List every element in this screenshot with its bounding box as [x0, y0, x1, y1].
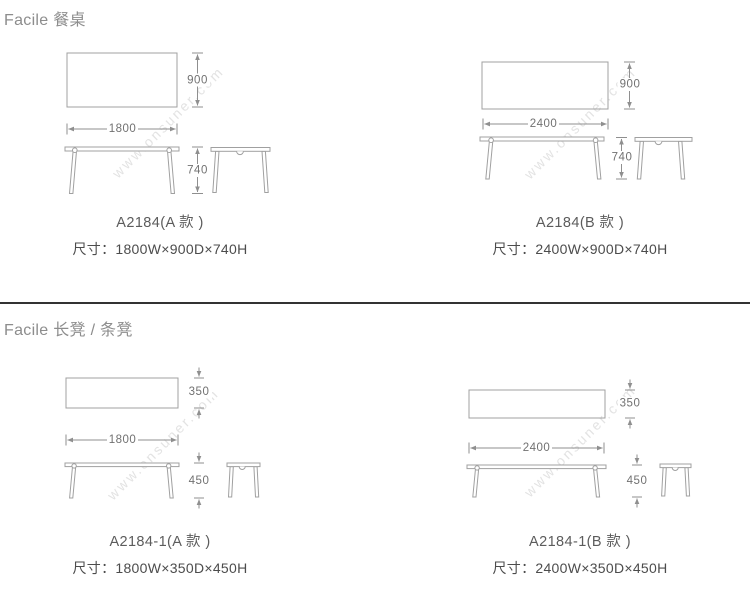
leg-joint-right — [167, 148, 172, 153]
side-right-leg — [254, 467, 259, 497]
leg-joint-right — [167, 464, 171, 468]
table-b-side-view — [635, 138, 692, 180]
bench-a-width-dimension: 1800 — [66, 434, 178, 447]
stretcher-notch — [237, 151, 244, 154]
drawing-bench-a: 350 1800 — [65, 368, 260, 509]
table-b-width-value: 2400 — [530, 118, 558, 130]
tabletop — [480, 137, 604, 141]
front-left-leg — [473, 469, 479, 497]
table-b-top-view — [482, 62, 608, 109]
front-left-leg — [70, 467, 76, 498]
bench-b-depth-value: 350 — [620, 398, 641, 410]
bench-b-height-value: 450 — [627, 475, 648, 487]
table-a-height-dimension: 740 — [185, 147, 210, 194]
seat — [467, 465, 606, 469]
tabletop-side — [211, 148, 270, 152]
label-table-a: A2184(A 款 ) 尺寸：1800W×900D×740H — [40, 211, 280, 259]
label-table-b: A2184(B 款 ) 尺寸：2400W×900D×740H — [460, 211, 700, 259]
size-spec: 尺寸：1800W×900D×740H — [40, 239, 280, 259]
side-left-leg — [637, 141, 643, 179]
seat-side — [660, 464, 691, 468]
bench-a-width-value: 1800 — [109, 434, 137, 446]
side-right-leg — [679, 141, 685, 179]
model-name: A2184(B 款 ) — [460, 211, 700, 232]
bench-b-width-dimension: 2400 — [469, 442, 604, 455]
bench-a-depth-dimension: 350 — [187, 368, 212, 419]
drawing-table-b: 900 2400 — [480, 62, 692, 179]
bench-a-height-value: 450 — [189, 475, 210, 487]
table-a-width-value: 1800 — [109, 123, 137, 135]
drawing-bench-b: 350 2400 — [467, 380, 691, 508]
table-a-front-view — [65, 147, 179, 194]
table-a-depth-dimension: 900 — [185, 53, 210, 107]
leg-joint-left — [72, 464, 76, 468]
table-b-width-dimension: 2400 — [483, 118, 608, 131]
front-right-leg — [168, 151, 175, 194]
table-b-height-value: 740 — [612, 152, 633, 164]
bench-a-depth-value: 350 — [189, 386, 210, 398]
seat-side — [227, 463, 260, 467]
side-left-leg — [229, 467, 234, 497]
side-left-leg — [213, 151, 219, 192]
side-right-leg — [262, 151, 268, 192]
front-right-leg — [167, 467, 173, 498]
stretcher-notch — [655, 141, 662, 144]
leg-joint-right — [593, 466, 597, 470]
model-name: A2184-1(A 款 ) — [40, 530, 280, 551]
table-a-top-view — [67, 53, 177, 107]
table-b-height-dimension: 740 — [610, 138, 635, 180]
label-bench-a: A2184-1(A 款 ) 尺寸：1800W×350D×450H — [40, 530, 280, 578]
bench-b-top-view — [469, 390, 605, 418]
table-b-depth-dimension: 900 — [618, 62, 643, 109]
bench-a-front-view — [65, 463, 179, 498]
front-left-leg — [486, 141, 493, 179]
table-a-depth-value: 900 — [187, 75, 208, 87]
tabletop-side — [635, 138, 692, 142]
side-left-leg — [662, 468, 667, 496]
bench-a-side-view — [227, 463, 260, 497]
bench-b-width-value: 2400 — [523, 442, 551, 454]
front-right-leg — [594, 469, 600, 497]
table-a-height-value: 740 — [187, 165, 208, 177]
leg-joint-left — [489, 138, 494, 143]
bench-b-side-view — [660, 464, 691, 496]
seat — [65, 463, 179, 467]
size-spec: 尺寸：2400W×900D×740H — [460, 239, 700, 259]
leg-joint-left — [475, 466, 479, 470]
front-right-leg — [594, 141, 601, 179]
table-b-depth-value: 900 — [620, 79, 641, 91]
bench-a-height-dimension: 450 — [187, 453, 212, 509]
bench-b-front-view — [467, 465, 606, 497]
technical-drawings-canvas: 900 1800 — [0, 0, 750, 611]
size-spec: 尺寸：1800W×350D×450H — [40, 558, 280, 578]
leg-joint-left — [73, 148, 78, 153]
stretcher-notch — [239, 467, 245, 470]
side-right-leg — [685, 468, 690, 496]
size-spec: 尺寸：2400W×350D×450H — [460, 558, 700, 578]
bench-a-top-view — [66, 378, 178, 408]
drawing-table-a: 900 1800 — [65, 53, 270, 194]
table-a-width-dimension: 1800 — [67, 123, 177, 136]
leg-joint-right — [593, 138, 598, 143]
model-name: A2184(A 款 ) — [40, 211, 280, 232]
front-left-leg — [70, 151, 77, 194]
bench-b-depth-dimension: 350 — [618, 380, 643, 429]
model-name: A2184-1(B 款 ) — [460, 530, 700, 551]
stretcher-notch — [672, 468, 678, 471]
spec-sheet-page: www.onsuner.com www.onsuner.com www.onsu… — [0, 0, 750, 611]
table-b-front-view — [480, 137, 604, 179]
tabletop — [65, 147, 179, 151]
label-bench-b: A2184-1(B 款 ) 尺寸：2400W×350D×450H — [460, 530, 700, 578]
table-a-side-view — [211, 148, 270, 193]
bench-b-height-dimension: 450 — [625, 455, 650, 508]
